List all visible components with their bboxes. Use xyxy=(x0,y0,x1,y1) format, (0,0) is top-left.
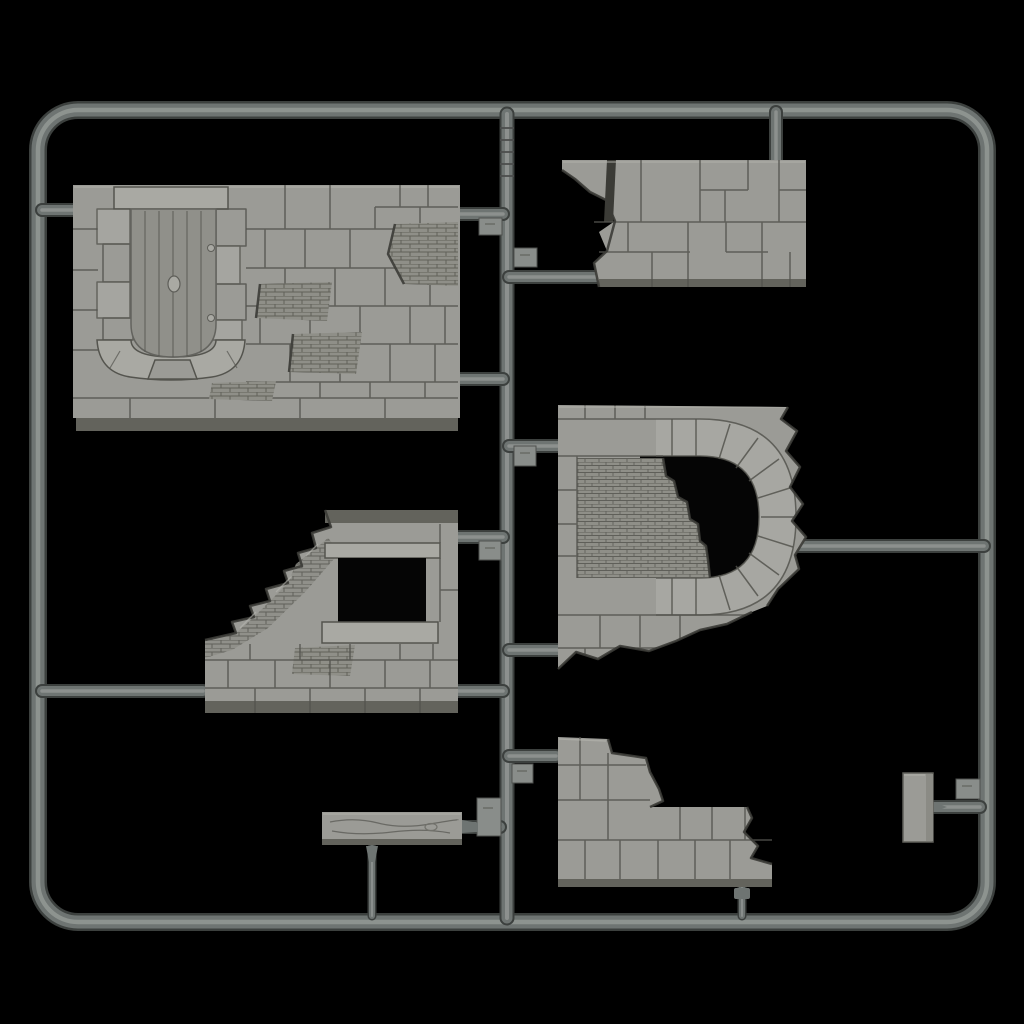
plank-bottom-edge xyxy=(322,839,462,845)
door-lintel xyxy=(114,187,228,209)
runner-tab xyxy=(479,541,501,560)
wall-face xyxy=(562,160,806,287)
window-sill xyxy=(322,622,438,643)
part-ruined-wall-window xyxy=(205,510,458,713)
runner-tab-plank-block xyxy=(477,798,501,836)
part-wall-with-door xyxy=(73,185,460,431)
runner-tab xyxy=(479,218,502,235)
door-hinge xyxy=(208,315,215,322)
part-stepped-wall xyxy=(558,737,772,887)
part-small-block xyxy=(903,773,947,842)
gate-collar-stepped-wall xyxy=(734,888,750,899)
sprue-photo xyxy=(0,0,1024,1024)
sprue-scene xyxy=(0,0,1024,1024)
part-wooden-plank xyxy=(322,812,478,845)
wall-bottom-edge xyxy=(76,418,458,431)
part-wall-arched-opening xyxy=(558,405,806,669)
runner-tab xyxy=(514,248,537,267)
window-lintel xyxy=(325,543,440,558)
runner-tab xyxy=(956,779,980,799)
wall-bottom-edge xyxy=(599,279,806,287)
block-side-shade xyxy=(926,774,933,841)
arched-plank-door xyxy=(131,209,216,357)
window-opening xyxy=(338,558,426,622)
door-knob xyxy=(168,276,180,292)
part-broken-wall-top xyxy=(562,160,806,287)
runner-tab xyxy=(514,446,536,466)
wall-face xyxy=(558,737,772,887)
door-hinge xyxy=(208,245,215,252)
keystone xyxy=(148,360,197,379)
runner-tab xyxy=(512,764,533,783)
wall-bottom-edge xyxy=(558,879,772,887)
wall-top-edge xyxy=(325,510,458,523)
